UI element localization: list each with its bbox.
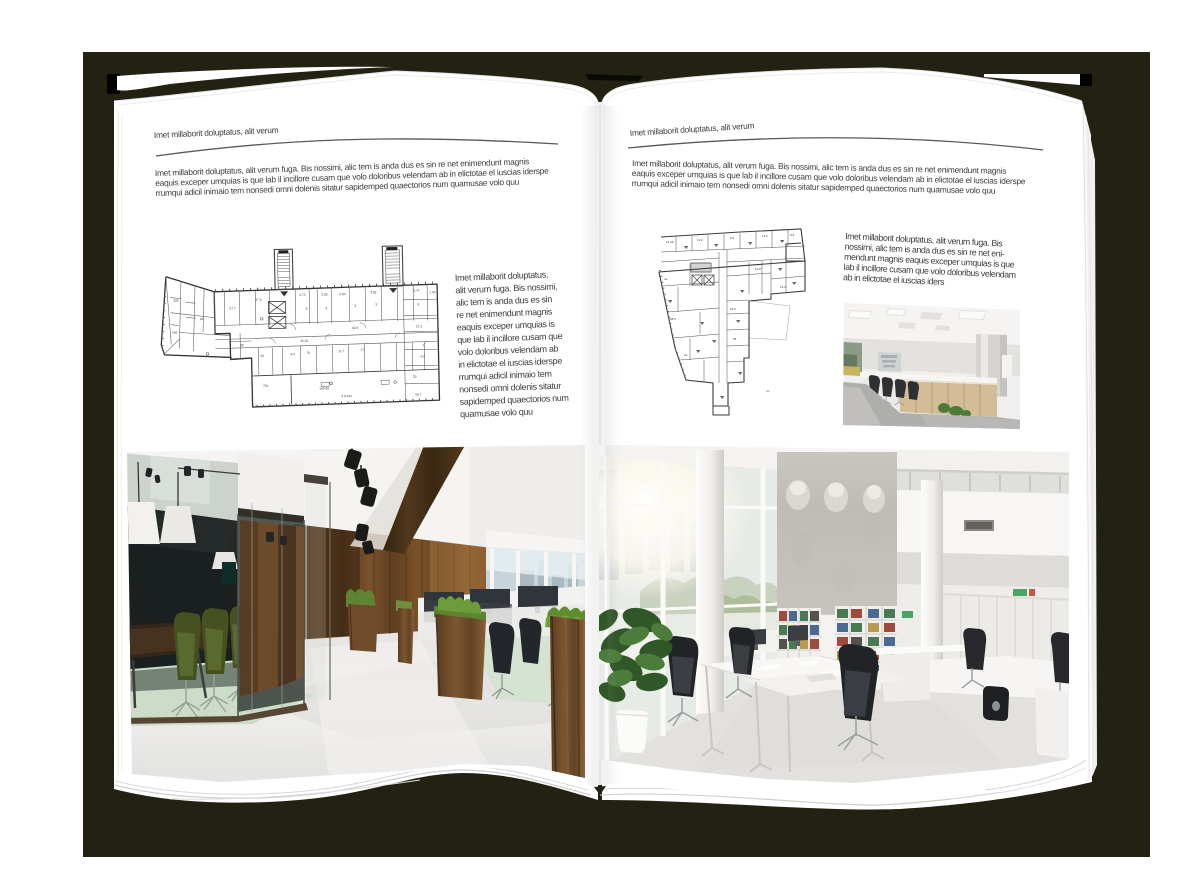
svg-text:2-й зал: 2-й зал: [341, 394, 352, 398]
svg-text:34: 34: [200, 317, 204, 321]
svg-text:6.8: 6.8: [421, 354, 426, 358]
svg-text:26: 26: [240, 343, 244, 347]
svg-text:22: 22: [684, 353, 688, 357]
svg-text:2.30: 2.30: [339, 292, 346, 296]
svg-text:1.45: 1.45: [429, 290, 436, 294]
svg-text:27.9: 27.9: [255, 298, 262, 302]
svg-text:8: 8: [354, 304, 356, 308]
svg-text:3.09: 3.09: [370, 290, 377, 294]
svg-text:3.75: 3.75: [413, 288, 420, 292]
svg-text:57.7: 57.7: [229, 306, 236, 310]
svg-text:4.4: 4.4: [290, 352, 295, 356]
svg-text:8: 8: [417, 302, 419, 306]
svg-text:8.9: 8.9: [790, 233, 795, 237]
svg-text:50.7: 50.7: [415, 392, 422, 396]
svg-text:9: 9: [306, 307, 308, 311]
svg-text:6: 6: [326, 306, 328, 310]
svg-text:206: 206: [173, 299, 179, 303]
svg-text:23v: 23v: [263, 384, 269, 388]
svg-text:2.75: 2.75: [299, 293, 306, 297]
svg-text:13.2: 13.2: [697, 238, 703, 242]
svg-text:266: 266: [172, 331, 178, 335]
svg-text:38.5: 38.5: [670, 317, 676, 321]
svg-text:2b: 2b: [260, 354, 264, 358]
svg-text:9.6: 9.6: [730, 236, 735, 240]
svg-text:17: 17: [360, 348, 364, 352]
svg-text:28: 28: [733, 337, 737, 341]
svg-text:12.2: 12.2: [762, 234, 768, 238]
svg-text:12.46: 12.46: [666, 240, 674, 244]
svg-text:140.88: 140.88: [319, 386, 329, 390]
svg-text:41: 41: [664, 277, 668, 281]
svg-text:31.5: 31.5: [730, 307, 736, 311]
svg-text:2.80: 2.80: [321, 292, 328, 296]
svg-text:11.7: 11.7: [338, 349, 344, 353]
svg-text:25.20: 25.20: [300, 339, 308, 343]
svg-text:30: 30: [413, 375, 417, 379]
svg-text:9: 9: [375, 302, 377, 306]
svg-text:40.9: 40.9: [352, 326, 359, 330]
svg-text:7b: 7b: [306, 351, 310, 355]
svg-text:пл: пл: [766, 389, 770, 393]
svg-text:16.4: 16.4: [780, 285, 786, 289]
svg-text:57.2: 57.2: [416, 324, 423, 328]
svg-text:14.8: 14.8: [755, 267, 761, 271]
